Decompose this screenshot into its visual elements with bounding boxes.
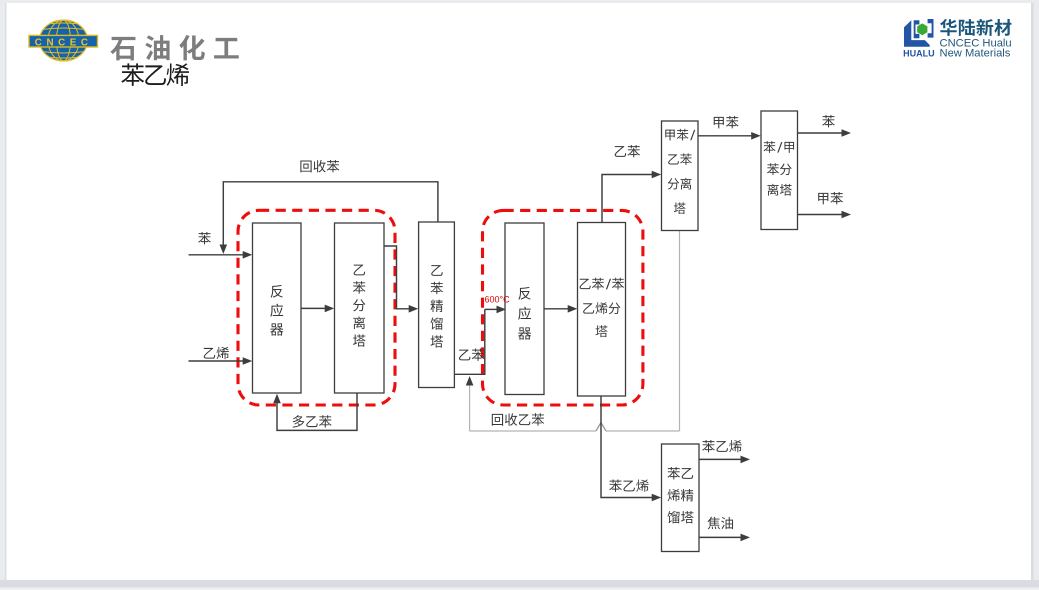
- svg-text:HUALU: HUALU: [903, 49, 935, 59]
- svg-text:New Materials: New Materials: [940, 48, 1011, 60]
- svg-text:600°C: 600°C: [485, 294, 511, 304]
- svg-text:CNCEC: CNCEC: [35, 38, 93, 49]
